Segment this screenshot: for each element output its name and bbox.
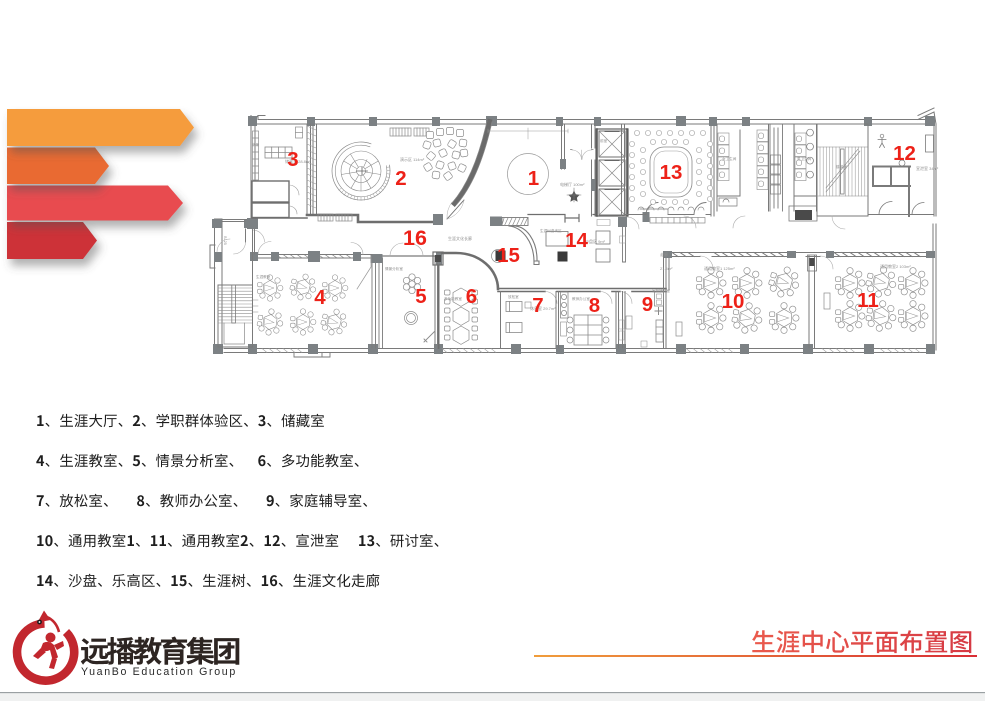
svg-text:16: 16 [403,226,427,250]
svg-text:5: 5 [415,285,426,308]
svg-text:21.5m²: 21.5m² [660,266,673,271]
svg-text:9: 9 [642,293,653,316]
svg-text:楼梯间: 楼梯间 [836,164,847,169]
svg-text:通用教室2 103m²: 通用教室2 103m² [880,263,911,269]
svg-text:B125: B125 [223,236,227,245]
svg-text:家庭辅导室: 家庭辅导室 [652,288,670,293]
svg-text:教师办公室: 教师办公室 [572,296,590,301]
svg-text:男卫生间: 男卫生间 [797,156,812,161]
svg-text:宣泄室 34m²: 宣泄室 34m² [916,165,939,171]
svg-text:4: 4 [314,286,326,309]
svg-text:多功能教室: 多功能教室 [444,296,462,301]
svg-text:生涯文化长廊: 生涯文化长廊 [448,235,472,241]
svg-text:10: 10 [722,290,745,313]
svg-text:电梯厅 100m²: 电梯厅 100m² [560,181,585,187]
svg-text:放松室: 放松室 [508,294,519,299]
svg-text:货架: 货架 [252,142,260,147]
svg-text:8: 8 [589,294,600,317]
svg-text:6: 6 [466,285,477,308]
svg-text:11: 11 [857,289,879,312]
svg-text:1: 1 [528,167,539,190]
svg-text:生涯教室: 生涯教室 [256,274,271,279]
svg-text:2: 2 [395,167,406,190]
svg-text:沙盘区 9m²: 沙盘区 9m² [585,238,606,244]
svg-text:走廊: 走廊 [660,251,668,257]
svg-text:7: 7 [532,294,543,317]
svg-text:演示区 114m²: 演示区 114m² [400,156,425,162]
svg-text:12: 12 [893,142,916,165]
svg-text:前室: 前室 [600,138,608,143]
svg-text:3: 3 [287,148,298,171]
svg-text:情景分析室: 情景分析室 [385,266,403,271]
svg-text:14: 14 [565,229,588,252]
svg-text:通用教室1 125m²: 通用教室1 125m² [704,265,735,271]
svg-text:生涯树咨询区: 生涯树咨询区 [540,228,562,233]
svg-text:YuanBo Education Group: YuanBo Education Group [81,666,237,678]
svg-text:13: 13 [660,161,683,184]
svg-text:女卫生间: 女卫生间 [722,156,737,161]
svg-text:15: 15 [497,244,520,267]
